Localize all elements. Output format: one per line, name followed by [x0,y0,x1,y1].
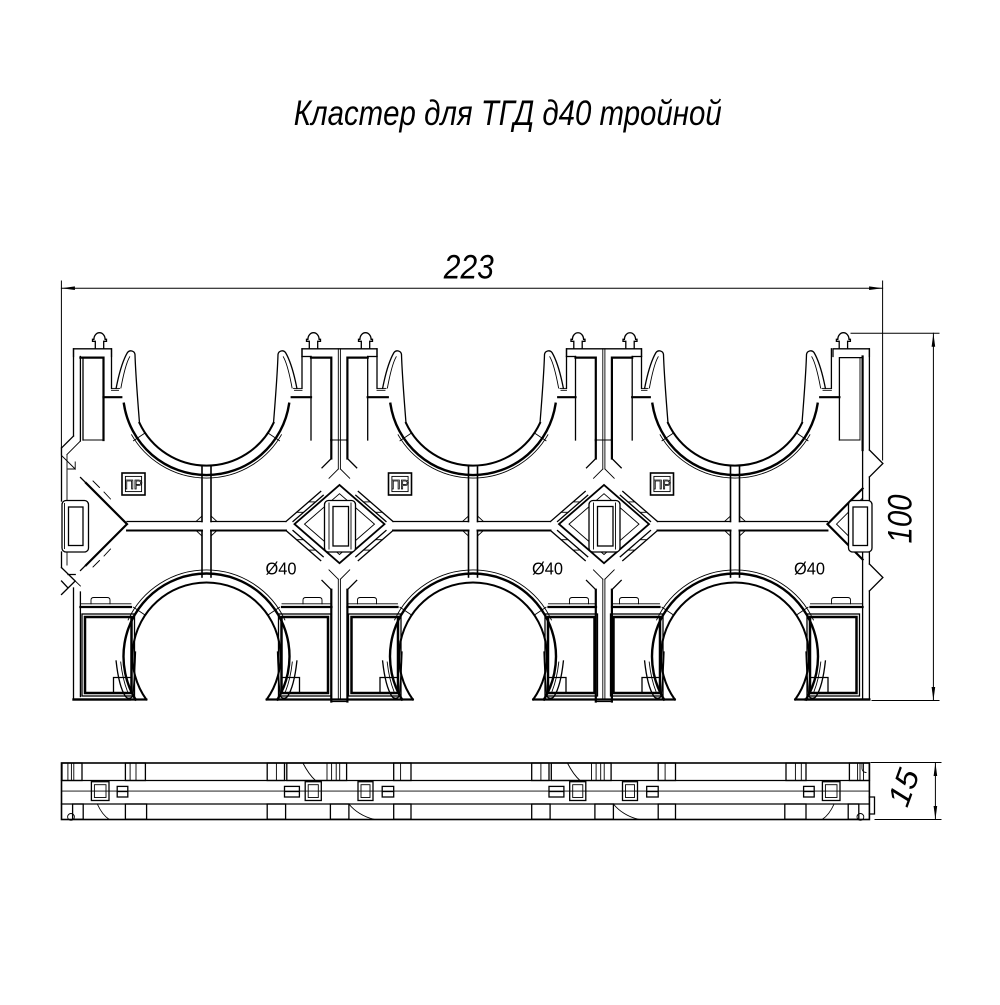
svg-text:Ø40: Ø40 [266,559,297,579]
svg-text:Ø40: Ø40 [794,559,825,579]
svg-text:Кластер для ТГД д40 тройной: Кластер для ТГД д40 тройной [294,94,722,133]
svg-text:ПР: ПР [391,477,409,492]
svg-text:100: 100 [882,494,920,543]
svg-text:ПР: ПР [124,477,142,492]
svg-text:ПР: ПР [653,477,671,492]
svg-text:223: 223 [443,248,494,286]
svg-text:Ø40: Ø40 [532,559,563,579]
